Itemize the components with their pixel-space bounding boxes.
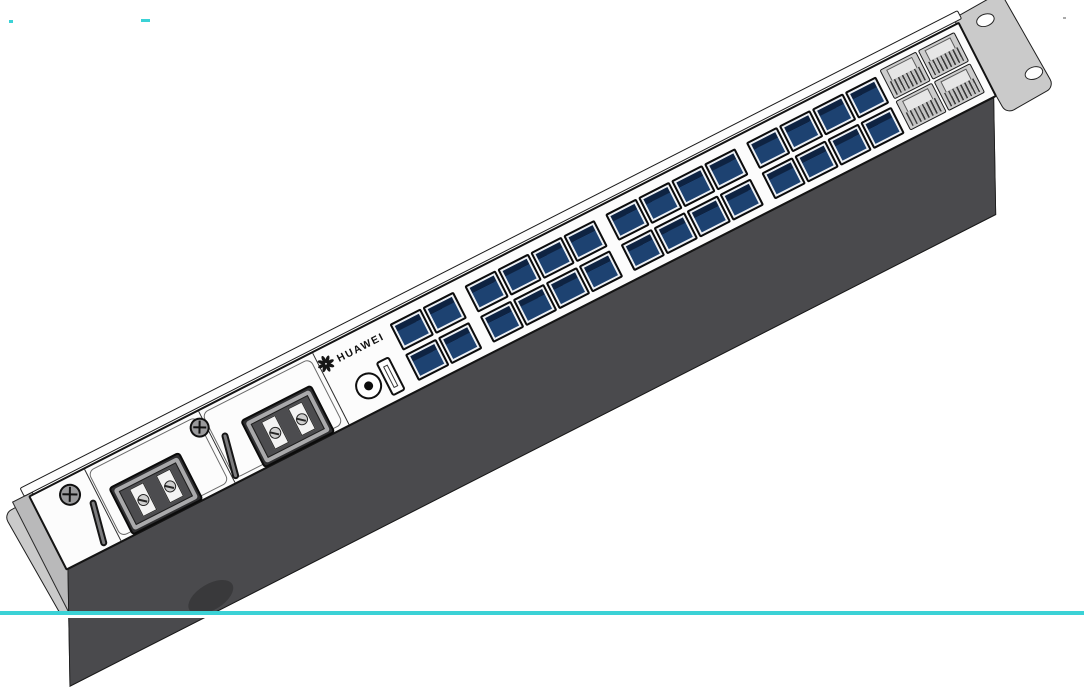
mounting-hole xyxy=(974,11,996,30)
mounting-hole xyxy=(1023,64,1045,83)
cyan-artifact-dot xyxy=(9,20,13,23)
terminal-screw xyxy=(135,492,151,508)
terminal-screw xyxy=(294,411,310,427)
cyan-artifact-dash xyxy=(141,19,150,22)
panel-screw xyxy=(55,480,85,510)
terminal-screw xyxy=(267,425,283,441)
front-panel: HUAWEI xyxy=(28,22,997,571)
module-handle xyxy=(89,499,108,547)
terminal-screw xyxy=(162,478,178,494)
gray-artifact-dot xyxy=(1063,17,1066,19)
